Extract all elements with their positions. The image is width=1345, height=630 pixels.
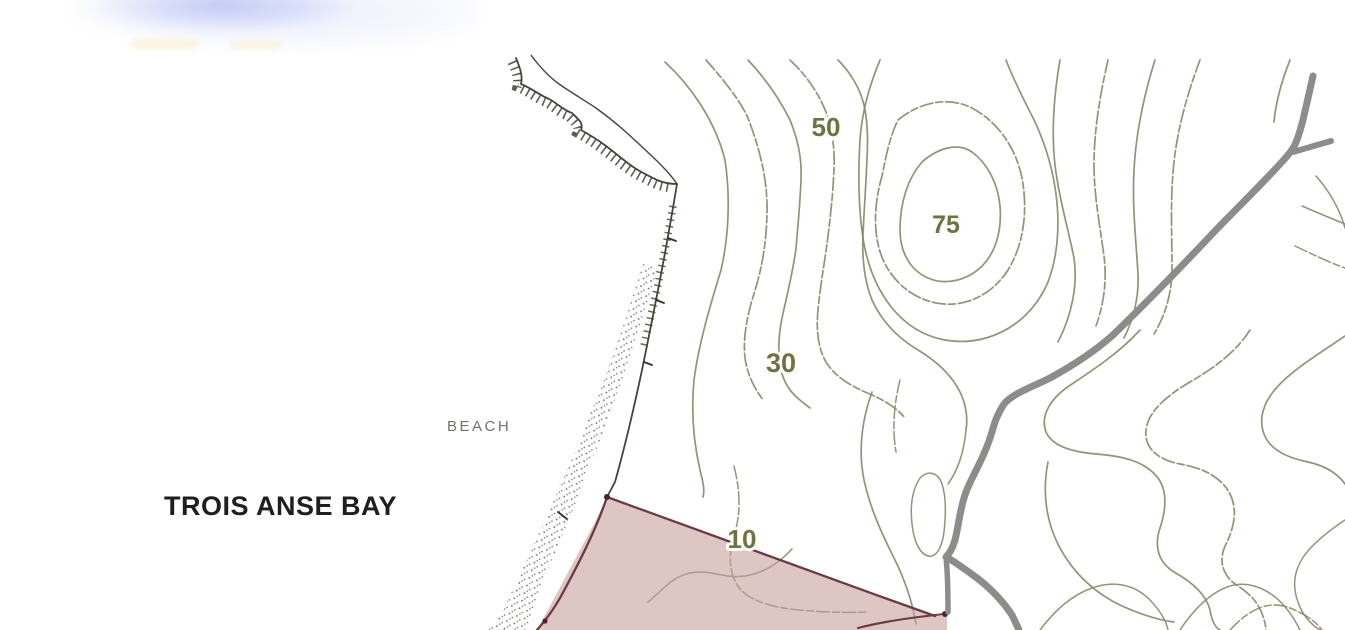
topographic-map: 50 75 30 10 BEACH TROIS ANSE BAY [0, 0, 1345, 630]
parcel-corner-marker [604, 494, 610, 500]
parcel-corner-marker [542, 618, 547, 623]
bay-name-label: TROIS ANSE BAY [164, 491, 397, 521]
beach-label: BEACH [447, 418, 511, 435]
contour-label-50: 50 [812, 112, 841, 142]
contour-label-30: 30 [766, 348, 796, 378]
contour-label-75: 75 [932, 211, 960, 239]
road [946, 76, 1331, 630]
road-spur-to-parcel [946, 557, 948, 612]
parcel-polygons [537, 494, 948, 630]
scanned-map-page: 50 75 30 10 BEACH TROIS ANSE BAY [0, 0, 1345, 630]
contour-label-10: 10 [728, 524, 757, 554]
